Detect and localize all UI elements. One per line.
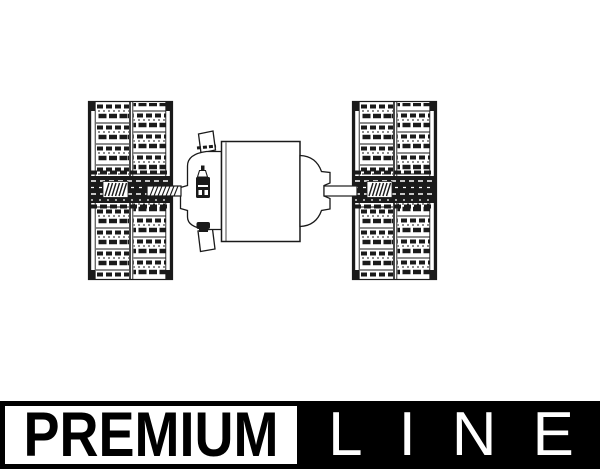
motor-shaft-left bbox=[147, 186, 181, 196]
mounting-flange-top bbox=[197, 131, 216, 153]
blower-motor-drawing bbox=[0, 0, 600, 400]
premium-line-banner: PREMIUM LINE bbox=[0, 401, 600, 469]
premium-label-box: PREMIUM bbox=[0, 401, 302, 469]
technical-drawing bbox=[0, 0, 600, 400]
motor-shaft-right bbox=[324, 186, 357, 196]
motor-housing bbox=[222, 142, 301, 242]
premium-label: PREMIUM bbox=[24, 403, 279, 466]
mounting-flange-bottom bbox=[198, 229, 215, 252]
line-label-box: LINE bbox=[302, 401, 600, 469]
right-blower-wheel bbox=[352, 101, 437, 280]
product-image-page: PREMIUM LINE bbox=[0, 0, 600, 472]
line-label: LINE bbox=[302, 404, 600, 466]
